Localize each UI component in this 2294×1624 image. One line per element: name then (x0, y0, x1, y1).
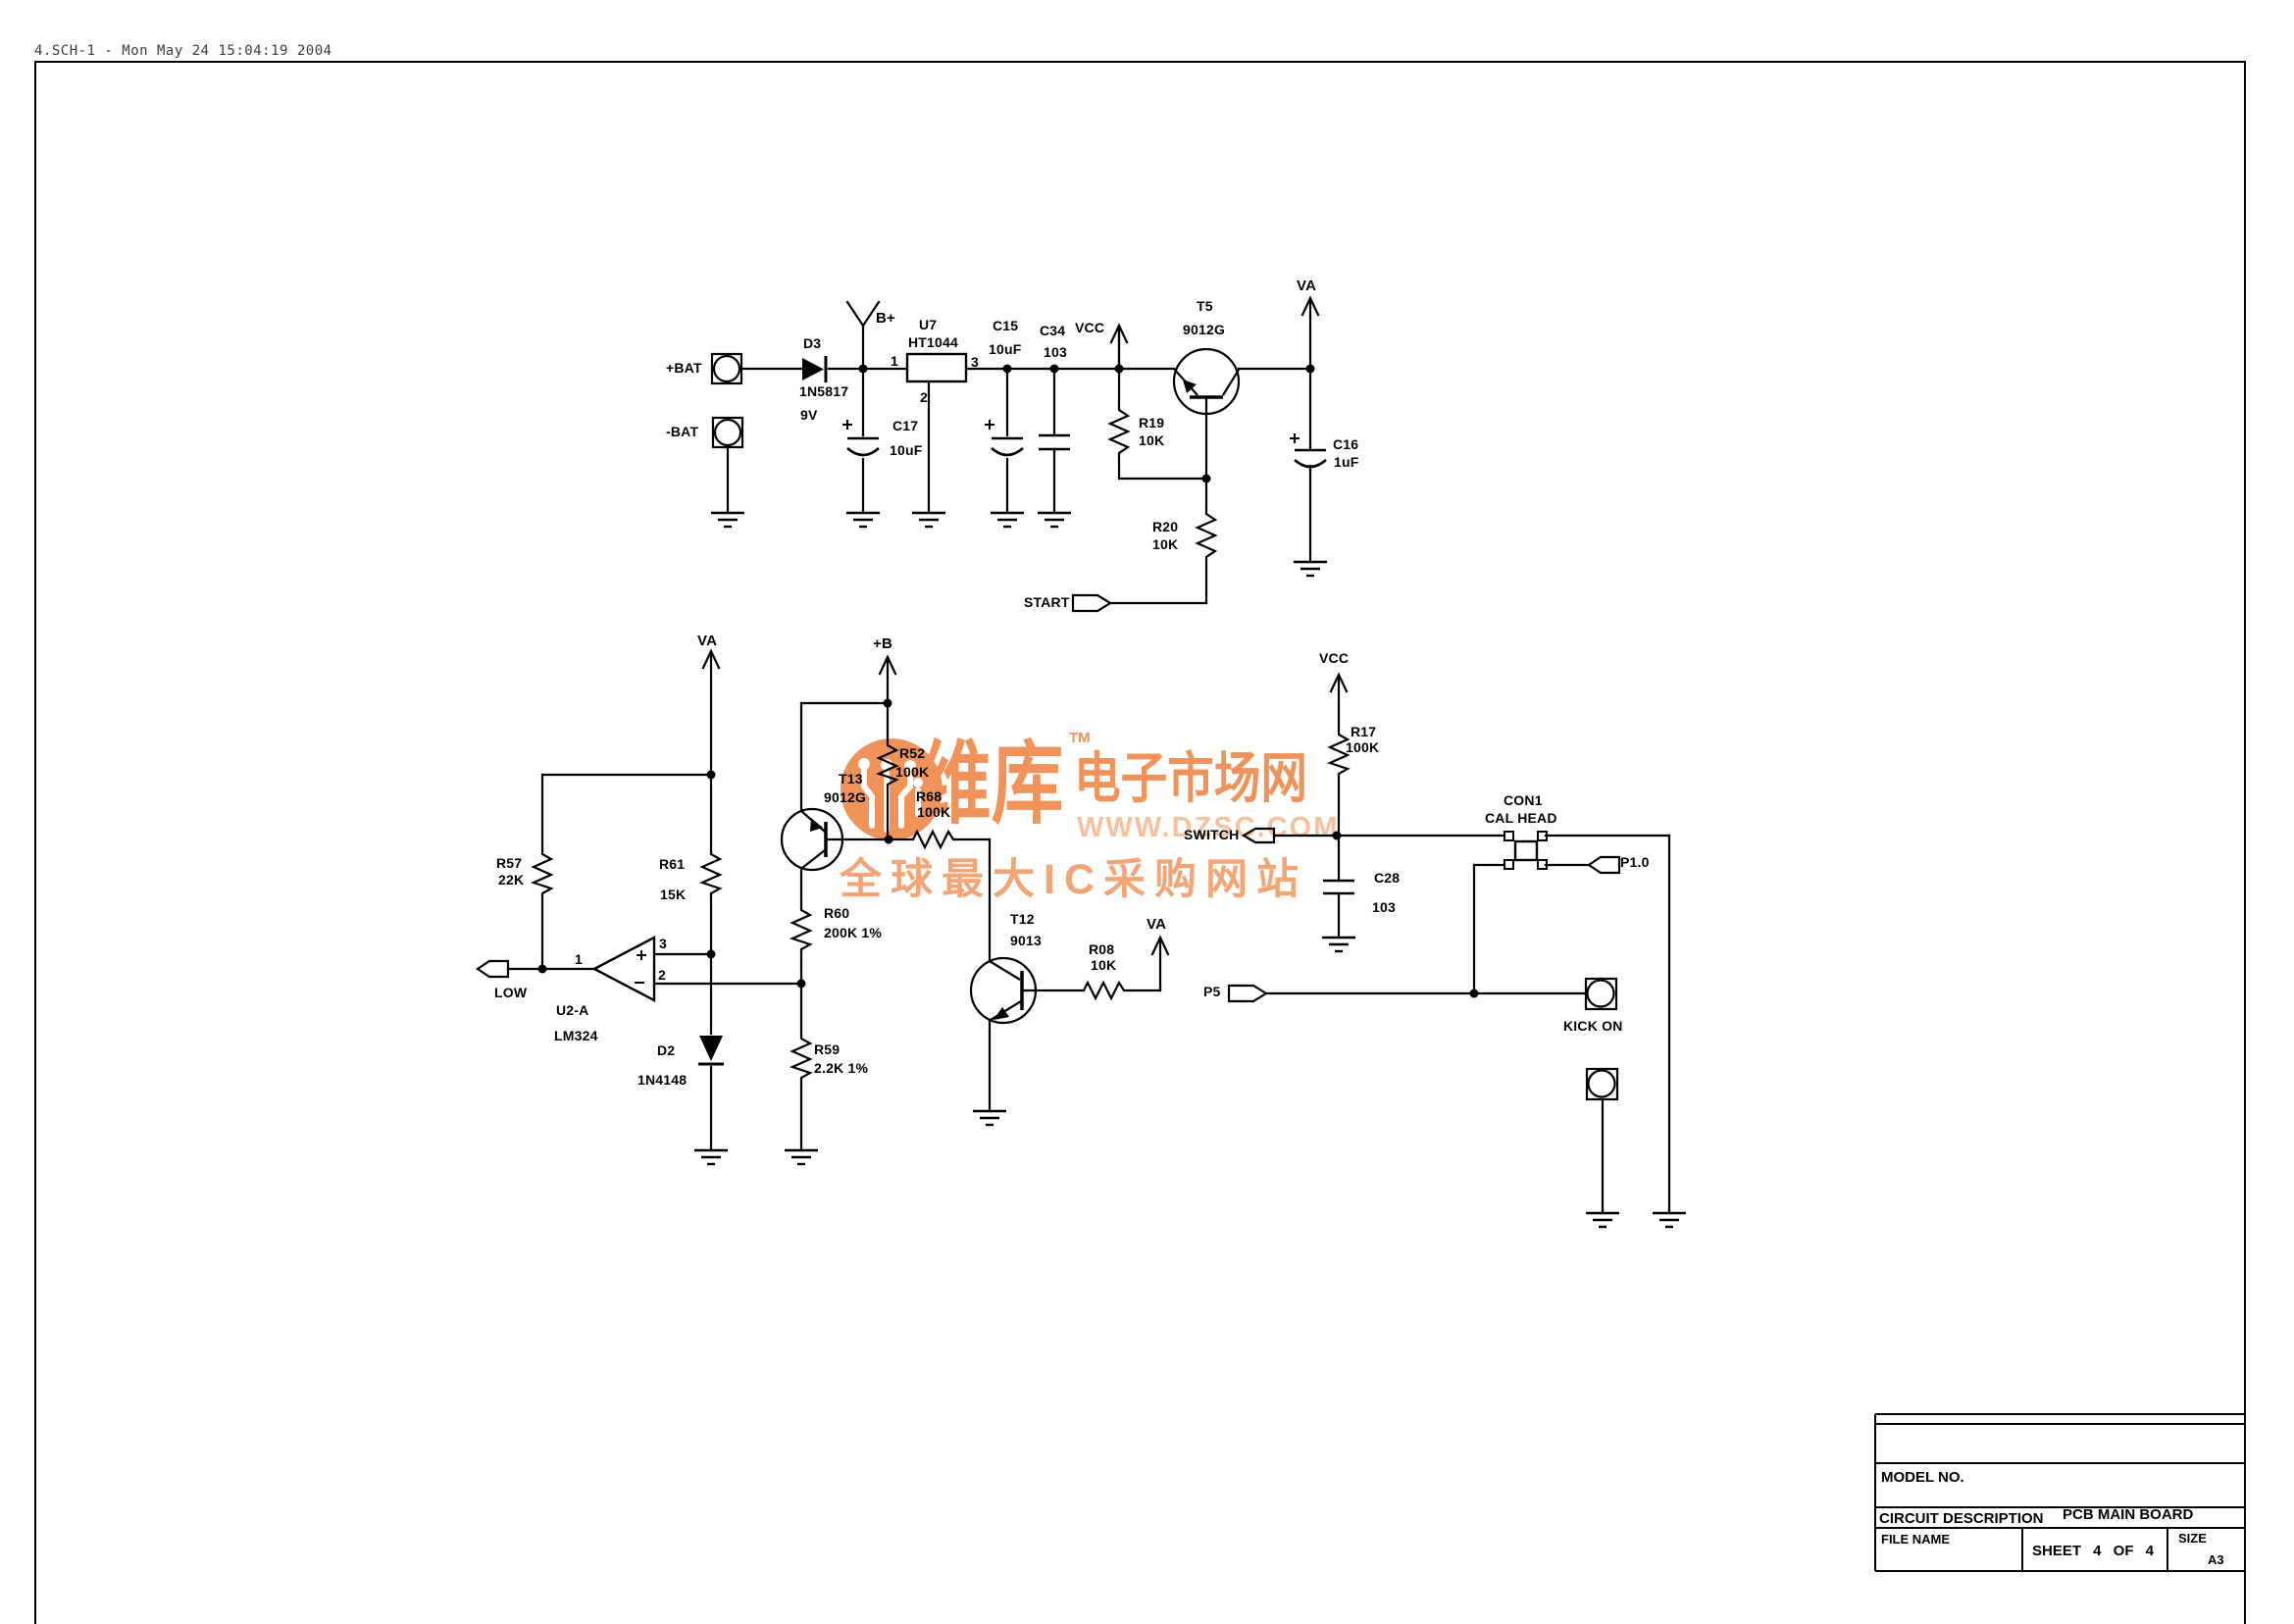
label-va-top: VA (1297, 279, 1316, 295)
label-r57-val: 22K (498, 873, 524, 888)
label-t5-ref: T5 (1197, 299, 1213, 314)
label-p5: P5 (1203, 985, 1221, 999)
label-u7-ref: U7 (919, 318, 937, 332)
label-r19-val: 10K (1139, 433, 1164, 448)
label-b-rail: +B (873, 636, 892, 653)
title-block-sheet: SHEET 4 OF 4 (2032, 1543, 2154, 1559)
label-bat-pos: +BAT (666, 361, 702, 376)
label-d2-ref: D2 (657, 1043, 675, 1058)
label-opamp-pin1: 1 (575, 952, 583, 967)
label-con1-ref: CON1 (1504, 793, 1543, 808)
label-c17-val: 10uF (890, 443, 922, 458)
label-vcc-right: VCC (1319, 651, 1349, 666)
label-c28-ref: C28 (1374, 871, 1400, 886)
label-switch: SWITCH (1184, 828, 1239, 842)
title-block-file-name: FILE NAME (1881, 1532, 1950, 1547)
label-r19-ref: R19 (1139, 416, 1164, 431)
label-t13-val: 9012G (824, 790, 866, 805)
label-r68-val: 100K (917, 805, 950, 820)
label-d2-val: 1N4148 (637, 1073, 687, 1088)
title-block-circuit-description-value: PCB MAIN BOARD (2063, 1506, 2193, 1523)
label-u2a-ref: U2-A (556, 1003, 588, 1018)
label-r59-val: 2.2K 1% (814, 1061, 868, 1076)
label-t13-ref: T13 (839, 772, 863, 787)
label-r08-ref: R08 (1089, 942, 1114, 957)
label-c16-ref: C16 (1333, 437, 1358, 452)
label-c34-ref: C34 (1040, 324, 1065, 338)
label-c34-val: 103 (1044, 345, 1067, 360)
label-r61-ref: R61 (659, 857, 685, 872)
label-r20-ref: R20 (1152, 520, 1178, 534)
label-c28-val: 103 (1372, 900, 1396, 915)
label-con1-val: CAL HEAD (1485, 811, 1557, 826)
label-kick-on: KICK ON (1563, 1019, 1623, 1034)
schematic-sheet: 维库 TM 电子市场网 WWW.DZSC.COM 全球最大IC采购网站 (0, 0, 2294, 1624)
label-r17-val: 100K (1346, 740, 1379, 755)
label-r17-ref: R17 (1351, 725, 1376, 739)
label-r52-ref: R52 (899, 746, 925, 761)
label-t12-ref: T12 (1010, 912, 1035, 927)
label-r60-ref: R60 (824, 906, 849, 921)
label-c15-val: 10uF (989, 342, 1021, 357)
label-r20-val: 10K (1152, 537, 1178, 552)
label-r60-val: 200K 1% (824, 926, 882, 940)
label-r68-ref: R68 (916, 789, 942, 804)
label-va-t12: VA (1147, 917, 1166, 934)
label-u7-pin3: 3 (971, 355, 979, 370)
label-c16-val: 1uF (1334, 455, 1359, 470)
label-c17-ref: C17 (892, 419, 918, 433)
label-u7-pin2: 2 (920, 390, 928, 405)
label-r57-ref: R57 (496, 856, 522, 871)
label-r08-val: 10K (1091, 958, 1116, 973)
schematic-labels: +BAT -BAT D3 1N5817 9V B+ U7 HT1044 1 3 … (0, 0, 2294, 1624)
label-t12-val: 9013 (1010, 934, 1042, 948)
label-opamp-pin3: 3 (659, 937, 667, 951)
label-d3-ref: D3 (803, 336, 821, 351)
title-block-circuit-description-label: CIRCUIT DESCRIPTION (1879, 1510, 2044, 1527)
label-b-plus: B+ (876, 311, 895, 328)
label-t5-val: 9012G (1183, 323, 1225, 337)
title-block-size-value: A3 (2208, 1552, 2224, 1567)
label-r61-val: 15K (660, 888, 686, 902)
label-vcc-top: VCC (1075, 321, 1104, 335)
label-opamp-pin2: 2 (658, 968, 666, 983)
label-start: START (1024, 595, 1070, 610)
label-r59-ref: R59 (814, 1042, 840, 1057)
label-p1-0: P1.0 (1620, 855, 1650, 870)
label-d3-note: 9V (800, 408, 818, 423)
label-u7-val: HT1044 (908, 335, 958, 350)
label-low: LOW (494, 986, 527, 1000)
label-c15-ref: C15 (993, 319, 1018, 333)
label-r52-val: 100K (895, 765, 929, 780)
label-u2a-val: LM324 (554, 1029, 598, 1043)
label-u7-pin1: 1 (891, 354, 898, 369)
label-d3-val: 1N5817 (799, 384, 848, 399)
title-block-model-no: MODEL NO. (1881, 1469, 1964, 1486)
label-va-mid: VA (697, 634, 717, 650)
label-bat-neg: -BAT (666, 425, 698, 439)
title-block-size-label: SIZE (2178, 1531, 2207, 1546)
